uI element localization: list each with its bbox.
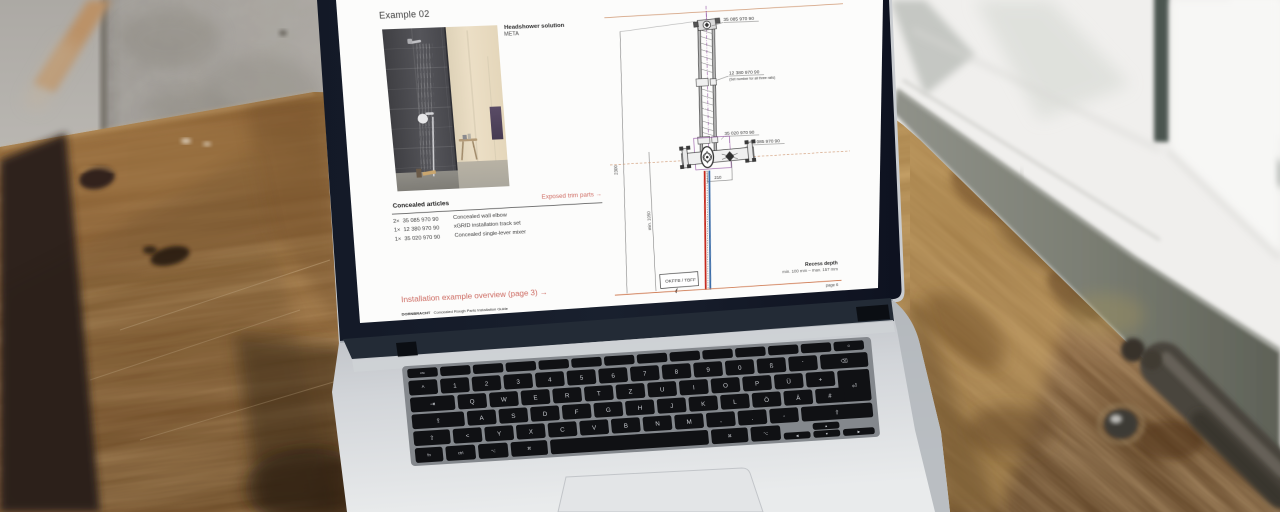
svg-text:^: ^ (421, 385, 425, 392)
svg-text:G: G (606, 407, 612, 414)
svg-text:⇪: ⇪ (435, 417, 441, 424)
svg-text:ctrl: ctrl (458, 450, 464, 455)
svg-text:⇧: ⇧ (429, 435, 435, 442)
svg-text:⌥: ⌥ (763, 431, 768, 436)
svg-text:⏎: ⏎ (852, 383, 858, 390)
svg-text:O: O (723, 382, 729, 389)
svg-text:⌘: ⌘ (727, 433, 732, 438)
svg-text:(Set number for all three rail: (Set number for all three rails) (729, 76, 776, 82)
svg-text:⌫: ⌫ (840, 358, 848, 364)
svg-text:Ü: Ü (786, 378, 791, 385)
svg-text:ß: ß (769, 363, 774, 370)
svg-text:Y: Y (497, 431, 502, 438)
svg-text:⌘: ⌘ (527, 446, 532, 451)
svg-text:H: H (637, 405, 642, 412)
svg-text:S: S (511, 413, 516, 420)
svg-text:esc: esc (420, 371, 426, 375)
svg-text:Recess depth: Recess depth (805, 261, 838, 268)
svg-text:2300: 2300 (613, 165, 619, 175)
svg-text:▼: ▼ (825, 432, 829, 436)
svg-text:X: X (529, 429, 534, 436)
svg-text:⇧: ⇧ (834, 409, 840, 416)
svg-text:F: F (574, 409, 579, 416)
svg-text:J: J (670, 403, 674, 410)
svg-text:Q: Q (469, 398, 475, 405)
svg-text:⌥: ⌥ (491, 448, 496, 453)
svg-text:U: U (660, 386, 665, 393)
svg-text:M: M (686, 419, 692, 426)
svg-text:▲: ▲ (824, 424, 828, 428)
svg-text:210: 210 (714, 175, 722, 180)
svg-text:B: B (623, 423, 628, 430)
svg-text:⇥: ⇥ (430, 401, 436, 408)
svg-text:P: P (755, 380, 760, 387)
svg-text:N: N (655, 421, 660, 428)
svg-text:Ö: Ö (764, 397, 770, 404)
svg-text:min. 100 mm – max. 157 mm: min. 100 mm – max. 157 mm (782, 267, 838, 275)
svg-text:page 6: page 6 (826, 283, 839, 288)
svg-text:E: E (533, 394, 538, 401)
svg-text:W: W (501, 396, 508, 403)
svg-text:T: T (597, 390, 602, 397)
svg-text:Z: Z (628, 388, 633, 395)
svg-text:min. 1050: min. 1050 (646, 211, 653, 230)
